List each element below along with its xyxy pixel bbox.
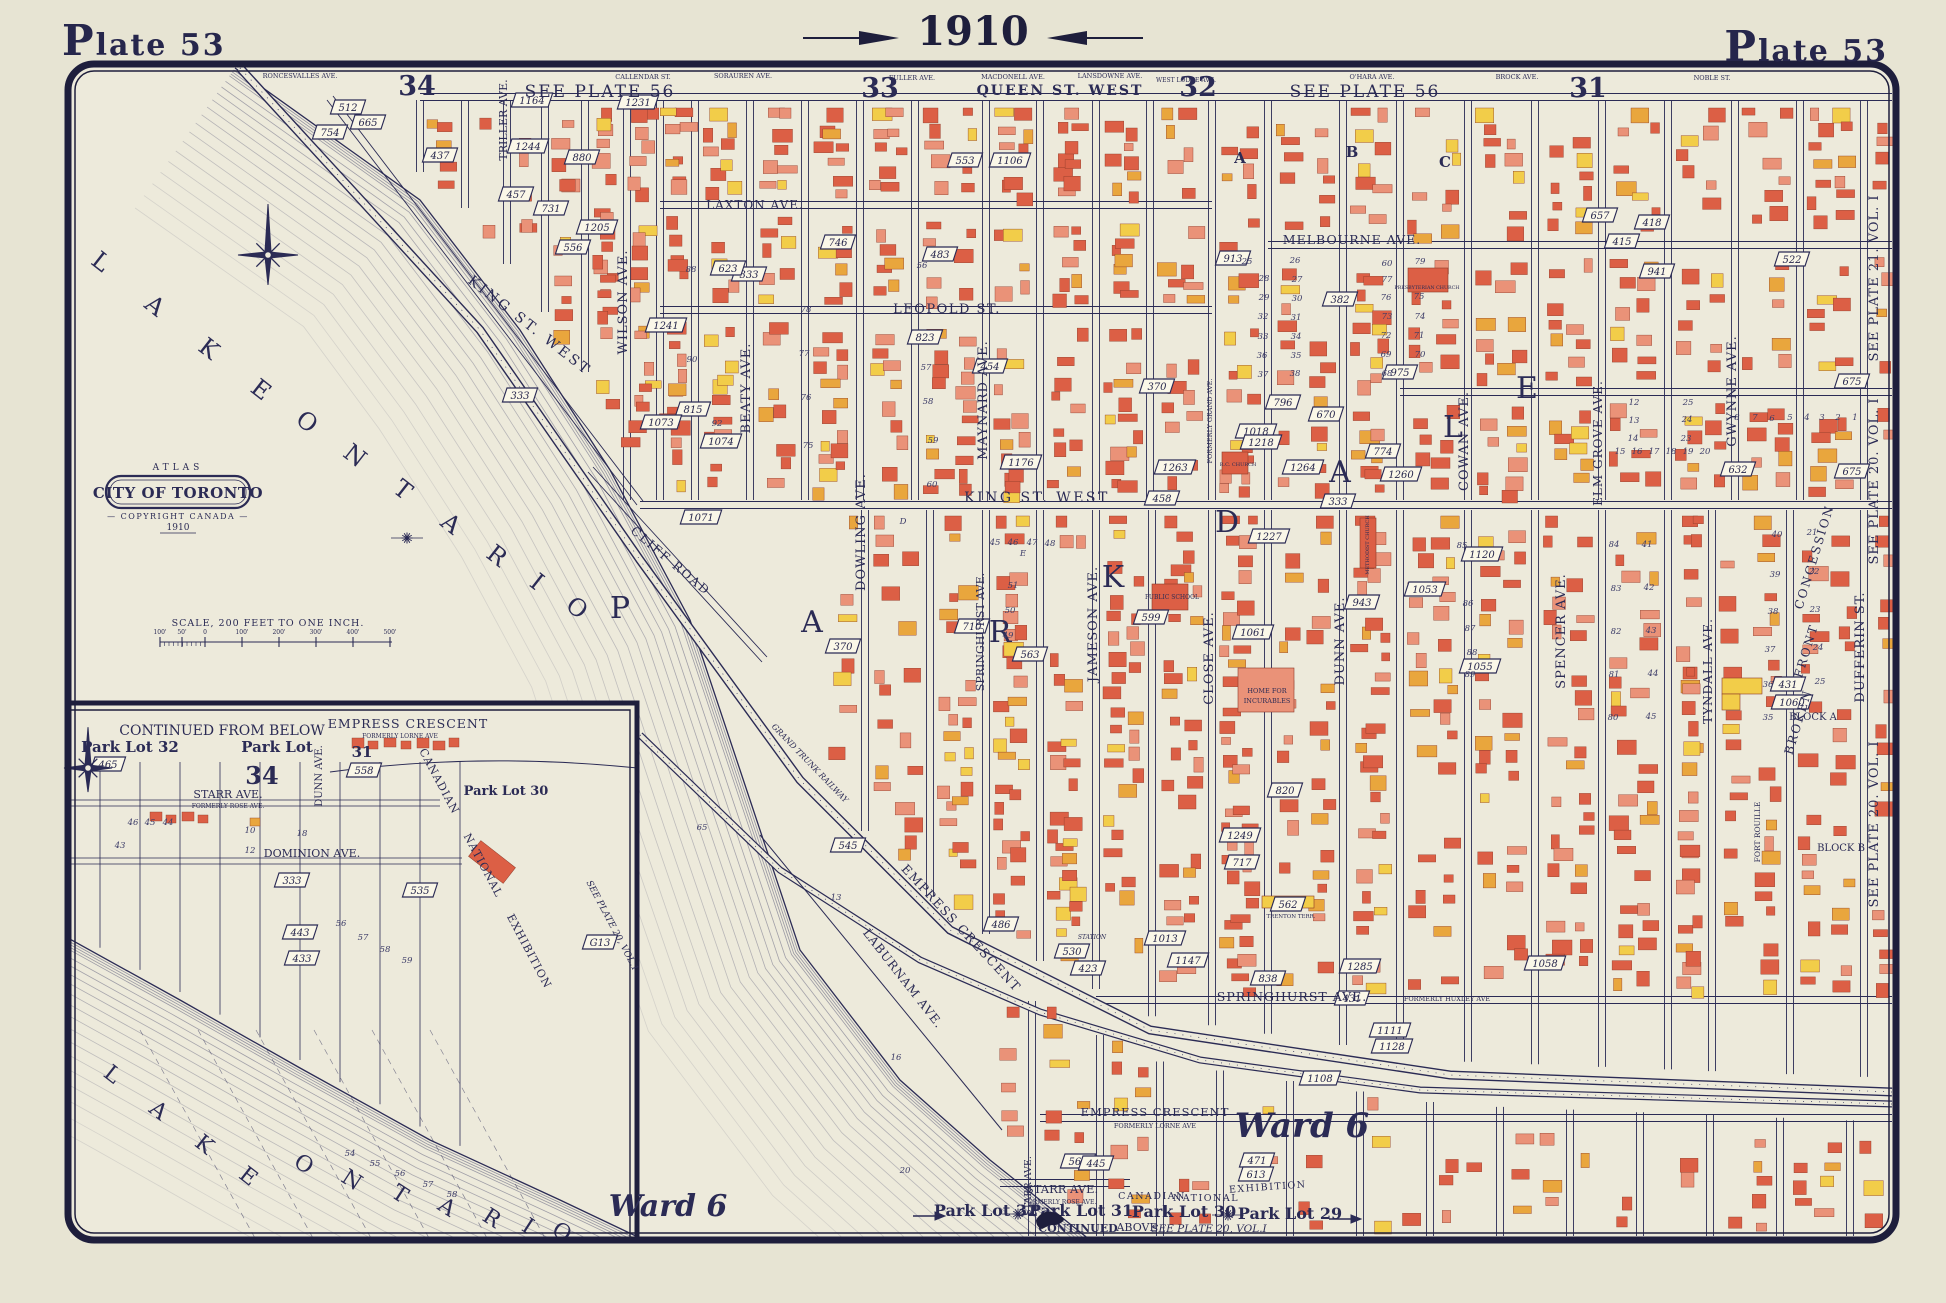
lot-number: 80 [1608,713,1619,723]
svg-text:418: 418 [1641,218,1661,229]
plate-ref-oval: 665 [350,115,385,129]
plate-ref-oval: 415 [1604,234,1639,248]
svg-text:500': 500' [383,629,396,636]
lot-number: 72 [1381,331,1392,341]
svg-text:675: 675 [1842,377,1861,388]
lot-number: 42 [1643,583,1655,593]
map-label: BROCK AVE. [1496,73,1539,81]
map-label: P [610,591,630,626]
lot-number: 16 [891,1053,902,1063]
lot-number: 56 [917,261,928,271]
map-label: STATION [1078,934,1107,941]
svg-text:100': 100' [235,629,248,636]
lot-number: 18 [297,829,308,839]
plate-ref-oval: 522 [1774,252,1809,266]
svg-text:1074: 1074 [708,437,733,448]
lot-number: 59 [928,436,939,446]
lot-number: 32 [1258,312,1269,322]
lot-number: 46 [127,818,139,828]
lot-number: 37 [1765,645,1776,655]
map-label: PUBLIC SCHOOL [1145,594,1199,601]
map-label: Park Lot 32 [81,738,179,756]
map-label: A [1328,455,1351,490]
svg-text:0: 0 [203,629,207,636]
lot-number: 58 [447,1190,458,1200]
svg-text:746: 746 [828,238,848,249]
plate-ref-oval: 1128 [1371,1039,1412,1053]
svg-text:200': 200' [272,629,285,636]
plate-ref-oval: 333 [274,873,309,887]
svg-text:333: 333 [282,876,301,887]
landmark-building [1722,678,1762,694]
map-label: GWYNNE AVE. [1725,335,1740,446]
map-label: FORMERLY LORNE AVE [1114,1122,1196,1130]
lot-number: 65 [697,823,708,833]
lot-number: 37 [1258,370,1269,380]
map-label: K [1102,560,1125,595]
plate-ref-oval: 670 [1308,407,1343,421]
svg-text:431: 431 [1777,680,1797,691]
svg-text:632: 632 [1728,465,1747,476]
map-label: HOME FOR [1247,687,1287,695]
svg-text:1227: 1227 [1256,532,1282,543]
inset-building [449,738,459,747]
svg-text:522: 522 [1782,255,1801,266]
map-label: LAXTON AVE. [706,198,804,212]
svg-text:1061: 1061 [1240,628,1265,639]
lot-number: 69 [1381,350,1392,360]
plate-ref-oval: 1111 [1369,1023,1410,1037]
map-label: MAYNARD AVE. [976,340,991,460]
lot-number: 33 [1258,332,1269,342]
map-label: CLOSE AVE. [1202,611,1217,705]
lot-number: 22 [1808,567,1820,577]
lot-number: 45 [1645,712,1657,722]
lot-number: D [899,517,907,527]
svg-text:1285: 1285 [1347,962,1372,973]
map-label: LEOPOLD ST. [893,302,1001,317]
svg-text:1013: 1013 [1152,934,1177,945]
svg-text:530: 530 [1062,947,1082,958]
plate-ref-oval: 471 [1239,1153,1274,1167]
map-label: DOMINION AVE. [264,847,360,860]
plate-ref-oval: 1120 [1461,547,1502,561]
map-label: STARR AVE. [1026,1182,1098,1196]
map-label: Park Lot 29 [1238,1204,1342,1223]
svg-text:613: 613 [1246,1170,1265,1181]
map-label: 34 [245,761,278,790]
inset-building [182,812,194,821]
map-label: SEE PLATE 20. VOL. I [1867,397,1882,564]
lot-number: 26 [1289,256,1301,266]
lot-number: 58 [923,397,934,407]
map-label: 34 [398,71,436,102]
map-label: KING ST. WEST [964,490,1110,506]
plate-ref-oval: 558 [346,763,381,777]
plate-ref-oval: 1263 [1154,460,1195,474]
lot-number: 5 [1787,413,1792,423]
plate-ref-oval: 457 [498,187,533,201]
svg-text:665: 665 [358,118,377,129]
lot-number: 14 [1628,434,1639,444]
lot-number: 2 [1834,413,1840,423]
map-label: PRESBYTERIAN CHURCH [1395,285,1460,291]
map-label: SEE PLATE 56 [1290,82,1441,102]
lot-number: 27 [1291,275,1303,285]
map-label: MACDONELL AVE. [981,73,1045,81]
svg-text:774: 774 [1373,447,1392,458]
plate-ref-oval: 675 [1834,374,1869,388]
lot-number: E [1019,549,1027,559]
lot-number: 8 [1734,413,1740,423]
atlas-map-plate: 4577311205556333124181510731074107182345… [0,0,1946,1303]
dart-ornament-left-icon [803,34,903,42]
svg-text:445: 445 [1085,1159,1105,1170]
map-label: SEE PLATE 20. VOL. I [1867,740,1882,907]
lot-number: 79 [1415,257,1426,267]
lot-number: 15 [1615,447,1626,457]
lot-number: 85 [1457,541,1468,551]
svg-text:1073: 1073 [648,418,673,429]
map-label: O'HARA AVE. [1349,73,1394,81]
lot-number: 24 [1812,643,1824,653]
lot-number: 20 [1699,447,1711,457]
plate-ref-oval: 1227 [1248,529,1289,543]
svg-text:943: 943 [1352,598,1371,609]
plate-ref-oval: 774 [1365,444,1400,458]
lot-number: 25 [1814,677,1826,687]
svg-text:1128: 1128 [1379,1042,1404,1053]
lot-number: 68 [1382,369,1393,379]
plate-ref-oval: 1205 [576,220,617,234]
map-label: INCURABLES [1244,697,1291,705]
lot-number: 82 [1611,627,1622,637]
lot-number: 35 [1763,713,1774,723]
lot-number: 86 [1463,599,1474,609]
plate-ref-oval: 1073 [640,415,681,429]
lot-number: 12 [245,846,256,856]
plate-ref-oval: 1071 [680,510,721,524]
lot-number: 17 [1649,447,1660,457]
map-label: WILSON AVE. [616,250,631,355]
inset-building [250,818,260,826]
lot-number: 45 [144,818,156,828]
lot-number: 76 [801,393,812,403]
lot-number: 59 [402,956,413,966]
map-label: A [800,605,823,640]
map-label: ELM GROVE AVE. [1591,380,1605,506]
plate-ref-oval: 657 [1582,208,1617,222]
lot-number: 54 [345,1149,356,1159]
plate-ref-oval: 1249 [1219,828,1260,842]
svg-text:1176: 1176 [1008,458,1034,469]
map-label: SORAUREN AVE. [714,72,772,80]
lot-number: 19 [1683,447,1694,457]
svg-text:558: 558 [354,766,373,777]
map-label: SEE PLATE 21. VOL. I [1867,194,1882,361]
lot-number: 39 [1770,570,1781,580]
inset-building [433,741,445,750]
map-label: SEE PLATE 56 [525,82,676,102]
map-canvas: 4577311205556333124181510731074107182345… [0,0,1946,1303]
inset-building [198,815,208,823]
plate-ref-oval: 1058 [1524,956,1565,970]
map-label: R.C. CHURCH [1220,462,1257,468]
map-label: Park Lot [241,738,313,756]
svg-text:1260: 1260 [1388,470,1414,481]
lot-number: 51 [1008,581,1019,591]
svg-text:1106: 1106 [997,156,1023,167]
map-label: FORMERLY LORNE AVE [362,733,438,740]
svg-text:300': 300' [309,629,322,636]
svg-text:1071: 1071 [688,513,713,524]
lot-number: 56 [336,919,347,929]
lot-number: 92 [712,419,723,429]
svg-text:1264: 1264 [1290,463,1315,474]
lot-number: 24 [1681,415,1693,425]
svg-text:437: 437 [429,151,450,162]
plate-ref-oval: 1106 [989,153,1030,167]
plate-ref-oval: 943 [1344,595,1379,609]
plate-ref-oval: 370 [1139,379,1174,393]
plate-ref-oval: 599 [1133,610,1168,624]
map-label: Ward 6 [1235,1106,1369,1146]
map-label: FORT ROUILLE [1753,802,1762,863]
plate-ref-oval: 632 [1720,462,1755,476]
plate-ref-oval: 382 [1322,292,1357,306]
svg-text:370: 370 [833,642,853,653]
lot-number: 12 [1629,398,1640,408]
lot-number: 83 [1611,584,1622,594]
lot-number: 18 [1666,447,1677,457]
lot-number: 75 [1414,292,1425,302]
map-label: JAMESON AVE. [1086,566,1101,684]
map-label: TYNDALL AVE. [1701,618,1715,724]
lot-number: 77 [1382,275,1393,285]
plate-ref-oval: 370 [825,639,860,653]
map-label: DUFFERIN ST. [1853,591,1868,702]
lot-number: 57 [423,1180,434,1190]
lot-number: 29 [1258,293,1270,303]
svg-text:823: 823 [915,333,934,344]
lot-number: 20 [899,1166,911,1176]
plate-ref-oval: 1176 [1000,455,1041,469]
svg-text:SCALE, 200 FEET TO ONE INCH.: SCALE, 200 FEET TO ONE INCH. [172,618,365,629]
map-label: CONTINUED FROM BELOW [119,723,325,739]
svg-text:1244: 1244 [515,142,540,153]
lot-number: 60 [1382,259,1393,269]
svg-text:675: 675 [1842,467,1861,478]
svg-text:941: 941 [1647,267,1666,278]
svg-text:ATLAS: ATLAS [152,463,204,473]
plate-ref-oval: 535 [402,883,437,897]
lot-number: 57 [358,933,369,943]
lot-number: 38 [1768,607,1779,617]
plate-ref-oval: 823 [907,330,942,344]
map-label: FORMERLY ROSE AVE. [192,803,265,810]
map-label: L [1443,410,1463,445]
plate-ref-oval: 820 [1267,783,1302,797]
plate-ref-oval: 437 [422,148,457,162]
svg-text:754: 754 [320,128,339,139]
plate-ref-oval: 486 [983,917,1018,931]
map-label: BEATY AVE. [739,343,754,434]
svg-text:400': 400' [346,629,359,636]
plate-ref-oval: 1264 [1282,460,1323,474]
lot-number: 36 [1763,680,1774,690]
plate-ref-oval: 483 [922,247,957,261]
lot-number: 90 [687,355,698,365]
plate-ref-oval: 545 [830,838,865,852]
inset-building [401,741,411,749]
map-label: MELBOURNE AVE. [1283,232,1421,247]
svg-text:1120: 1120 [1469,550,1495,561]
lot-number: 30 [1292,294,1303,304]
lot-number: 34 [1291,332,1302,342]
lot-number: 13 [831,893,842,903]
map-label: Park Lot 30 [1132,1202,1236,1221]
plate-ref-oval: 717 [1224,855,1259,869]
plate-ref-oval: 562 [1270,897,1305,911]
lot-number: 84 [1609,540,1620,550]
plate-ref-oval: 418 [1634,215,1669,229]
svg-text:599: 599 [1141,613,1161,624]
lot-number: 81 [1609,670,1620,680]
svg-text:457: 457 [505,190,526,201]
svg-text:512: 512 [338,103,357,114]
plate-ref-oval: 1013 [1144,931,1185,945]
map-label: NOBLE ST. [1694,74,1731,82]
svg-text:556: 556 [563,243,583,254]
map-label: A [1233,149,1246,167]
svg-text:545: 545 [838,841,857,852]
title-year-wrap: 1910 [0,8,1946,55]
svg-text:443: 443 [289,928,309,939]
svg-text:975: 975 [1390,368,1409,379]
map-label: Park Lot 30 [464,784,549,799]
svg-text:100': 100' [153,629,166,636]
svg-text:1910: 1910 [167,523,190,533]
map-label: QUEEN ST. WEST [977,83,1144,99]
lot-number: 88 [686,265,697,275]
lot-number: 77 [799,349,810,359]
map-label: B [1346,143,1359,161]
lot-number: 43 [114,841,126,851]
plate-ref-oval: 880 [564,150,599,164]
svg-text:1053: 1053 [1412,585,1437,596]
lot-number: 41 [1641,540,1653,550]
map-label: TRILLER AVE. [497,79,510,160]
lot-number: 47 [1026,538,1038,548]
lot-number: 13 [1629,416,1640,426]
plate-ref-oval: 333 [502,388,537,402]
map-label: SPRINGHURST AVE. [1217,989,1368,1004]
dart-ornament-right-icon [1043,34,1143,42]
plate-ref-oval: 796 [1265,395,1300,409]
lot-number: 57 [921,363,932,373]
lot-number: 31 [1291,313,1302,323]
map-label: 32 [1179,72,1217,103]
svg-text:50': 50' [177,629,187,636]
plate-ref-oval: 556 [555,240,590,254]
plate-ref-oval: 731 [533,201,568,215]
plate-ref-oval: 458 [1144,491,1179,505]
map-label: E [1516,371,1538,406]
lot-number: 58 [380,945,391,955]
plate-ref-oval: 443 [282,925,317,939]
svg-text:333: 333 [510,391,529,402]
lot-number: 4 [1803,413,1809,423]
svg-text:553: 553 [955,156,974,167]
svg-text:1241: 1241 [653,321,678,332]
map-label: FORMERLY HUXLEY AVE [1404,995,1491,1003]
map-label: EMPRESS CRESCENT [1081,1105,1230,1119]
map-label: RONCESVALLES AVE. [263,72,338,80]
plate-ref-oval: 1260 [1380,467,1421,481]
svg-text:483: 483 [929,250,949,261]
svg-text:370: 370 [1147,382,1167,393]
lot-number: 45 [989,538,1001,548]
plate-ref-oval: 1244 [507,139,548,153]
svg-text:623: 623 [718,264,737,275]
plate-ref-oval: 1285 [1339,959,1380,973]
map-label: D [1215,505,1239,540]
landmark-building [1722,694,1740,710]
map-label: TRENTON TERR. [1266,914,1315,920]
lot-number: 3 [1819,413,1824,423]
lot-number: 7 [1752,413,1758,423]
svg-text:1108: 1108 [1307,1074,1332,1085]
svg-text:382: 382 [1330,295,1349,306]
plate-ref-oval: 553 [947,153,982,167]
lot-number: 70 [1415,350,1426,360]
svg-text:333: 333 [1328,497,1347,508]
svg-text:815: 815 [683,405,702,416]
plate-ref-oval: 754 [312,125,347,139]
plate-ref-oval: 333 [1320,494,1355,508]
plate-ref-oval: 746 [820,235,855,249]
plate-ref-oval: 675 [1834,464,1869,478]
svg-text:G13: G13 [590,938,611,949]
lot-number: 56 [395,1169,406,1179]
lot-number: 73 [1382,312,1393,322]
lot-number: 1 [1852,413,1857,423]
svg-text:471: 471 [1246,1156,1266,1167]
plate-ref-oval: 613 [1238,1167,1273,1181]
plate-ref-oval: 512 [330,100,365,114]
svg-text:670: 670 [1316,410,1336,421]
plate-ref-oval: 445 [1078,1156,1113,1170]
lot-number: 43 [1645,626,1657,636]
lot-number: 49 [1002,631,1014,641]
svg-text:657: 657 [1590,211,1610,222]
map-label: FORMERLY GRAND AVE. [1206,379,1214,464]
plate-ref-oval: 838 [1250,971,1285,985]
svg-text:913: 913 [1223,254,1242,265]
lot-number: 23 [1809,605,1821,615]
svg-text:1263: 1263 [1162,463,1187,474]
map-label: DUNN AVE. [1333,596,1348,685]
plate-ref-oval: 1074 [700,434,741,448]
map-label: LANSDOWNE AVE. [1078,72,1143,80]
svg-text:CITY OF TORONTO: CITY OF TORONTO [93,484,263,502]
map-label: 33 [861,73,899,104]
lot-number: 89 [1465,670,1476,680]
svg-text:1058: 1058 [1532,959,1557,970]
lot-number: 60 [927,480,938,490]
plate-ref-oval: 530 [1054,944,1089,958]
map-label: 31 [352,743,373,761]
